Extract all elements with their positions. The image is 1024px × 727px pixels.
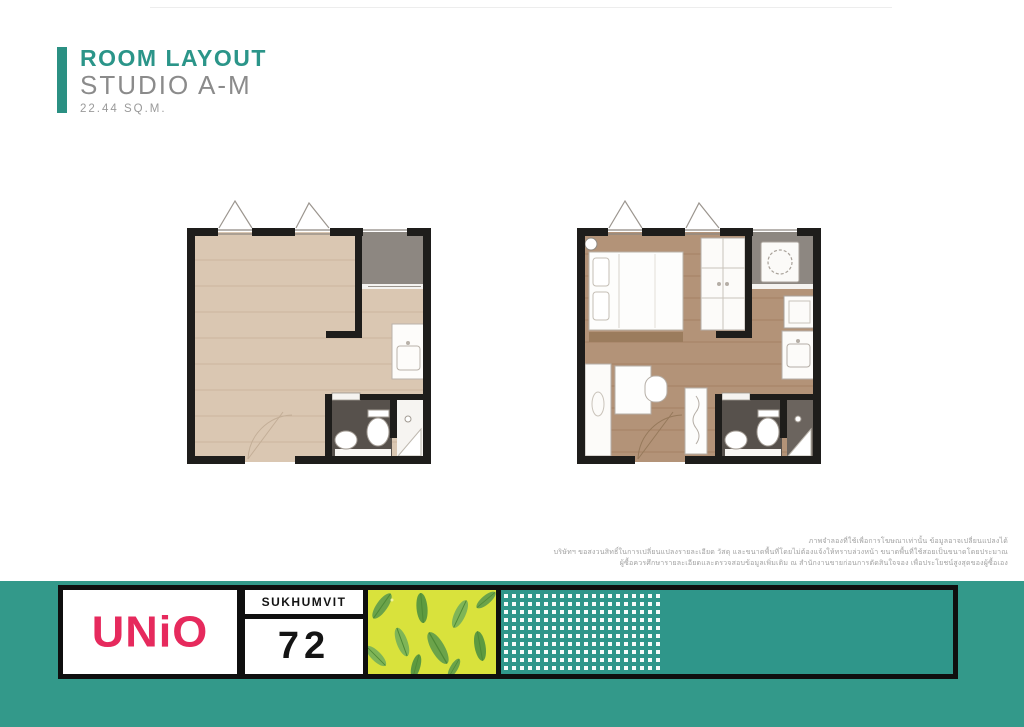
wardrobe [701, 238, 745, 330]
disclaimer-line: ผู้ซื้อควรศึกษารายละเอียดและตรวจสอบข้อมู… [538, 558, 1008, 569]
unio-logo-cell: UNiO [63, 590, 237, 674]
dot-pattern [501, 590, 663, 674]
page-subtitle: STUDIO A-M [80, 71, 267, 100]
brand-banner: UNiO SUKHUMVIT 72 [58, 585, 958, 679]
tall-cabinet [585, 364, 611, 456]
balcony [752, 232, 817, 289]
disclaimer-line: บริษัทฯ ขอสงวนสิทธิ์ในการเปลี่ยนแปลงรายล… [538, 547, 1008, 558]
bathroom-sliding-door [722, 393, 750, 400]
page-top-hairline [150, 7, 892, 8]
page-title: ROOM LAYOUT [80, 45, 267, 71]
unio-logo: UNiO [92, 607, 209, 657]
balcony [362, 232, 427, 289]
sink-icon [335, 431, 357, 449]
bed-bench [589, 332, 683, 342]
unit-area: 22.44 SQ.M. [80, 103, 267, 115]
leaf-pattern-graphic [368, 590, 496, 674]
sink-icon [725, 431, 747, 449]
plant-icon [585, 238, 597, 250]
street-number: 72 [245, 619, 363, 674]
chair-icon [645, 376, 667, 402]
disclaimer-line: ภาพจำลองที่ใช้เพื่อการโฆษณาเท่านั้น ข้อม… [538, 536, 1008, 547]
leaf-pattern [368, 590, 496, 674]
tv-console [685, 388, 707, 454]
header: ROOM LAYOUT STUDIO A-M 22.44 SQ.M. [57, 45, 267, 115]
toilet-icon [367, 410, 389, 446]
window-icons [218, 201, 407, 234]
water-heater-icon [405, 416, 411, 422]
window-icons [608, 201, 797, 234]
floorplan-furnished [575, 198, 823, 470]
floorplan-unfurnished [185, 198, 433, 470]
bed [585, 238, 683, 342]
kitchen-counter [392, 324, 425, 379]
fridge-icon [784, 296, 815, 328]
sukhumvit-cell: SUKHUMVIT 72 [245, 590, 363, 674]
bathroom [720, 393, 814, 462]
washing-machine-icon [761, 242, 799, 282]
disclaimer: ภาพจำลองที่ใช้เพื่อการโฆษณาเท่านั้น ข้อม… [538, 536, 1008, 569]
street-label: SUKHUMVIT [245, 590, 363, 619]
water-heater-icon [795, 416, 801, 422]
banner-divider [237, 590, 245, 674]
room-layout-poster: ROOM LAYOUT STUDIO A-M 22.44 SQ.M. [0, 0, 1024, 727]
bathroom-sliding-door [332, 393, 360, 400]
header-text: ROOM LAYOUT STUDIO A-M 22.44 SQ.M. [80, 45, 267, 115]
bathroom [330, 393, 424, 462]
toilet-icon [757, 410, 779, 446]
header-accent-bar [57, 47, 67, 113]
banner-teal-panel [663, 590, 953, 674]
kitchen-counter [782, 331, 815, 379]
